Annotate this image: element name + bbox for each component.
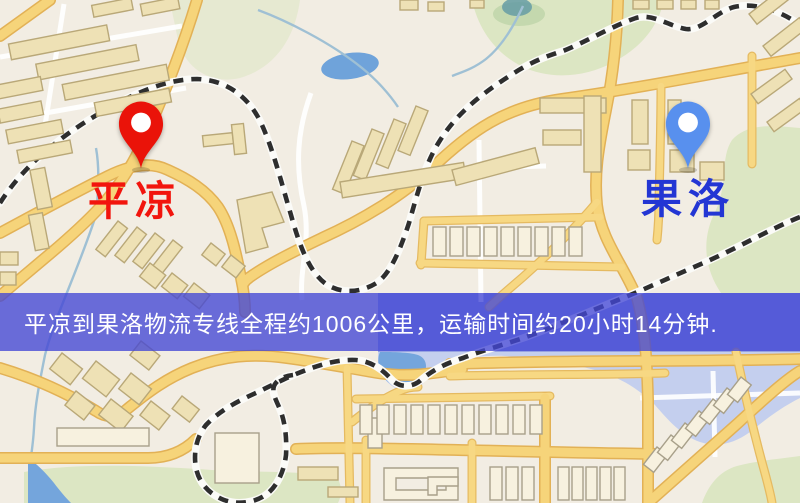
origin-pin-icon	[114, 100, 168, 172]
route-info-text: 平凉到果洛物流专线全程约1006公里，运输时间约20小时14分钟.	[24, 305, 718, 339]
route-info-banner: 平凉到果洛物流专线全程约1006公里，运输时间约20小时14分钟.	[0, 293, 800, 351]
origin-label: 平凉	[88, 181, 182, 222]
destination-label: 果洛	[641, 179, 735, 220]
logistics-map-view: 平凉 果洛 平凉到果洛物流专线全程约1006公里，运输时间约20小时14分钟.	[0, 0, 800, 503]
map-artwork	[0, 0, 800, 503]
destination-pin-icon	[661, 100, 715, 172]
